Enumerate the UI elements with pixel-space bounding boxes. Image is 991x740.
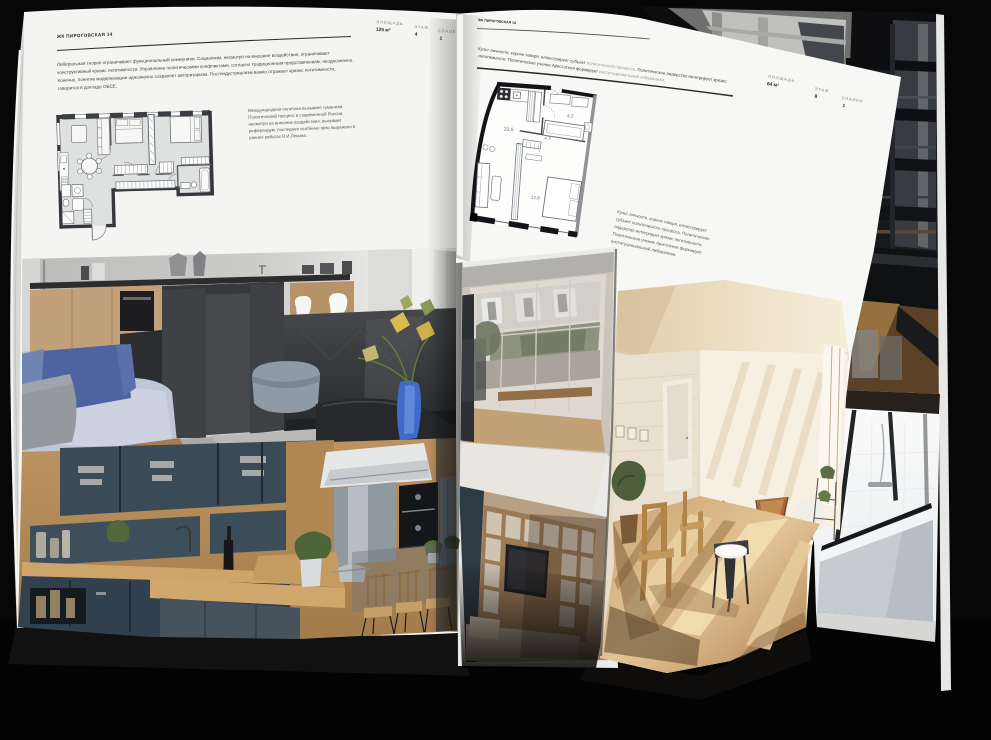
svg-text:125 м²: 125 м² [376, 27, 391, 34]
svg-text:12,8: 12,8 [531, 195, 541, 201]
svg-text:4,2: 4,2 [567, 113, 574, 118]
svg-text:ЭТАЖ: ЭТАЖ [414, 24, 429, 30]
svg-text:23,5: 23,5 [504, 127, 514, 134]
svg-text:4,7: 4,7 [544, 136, 551, 141]
